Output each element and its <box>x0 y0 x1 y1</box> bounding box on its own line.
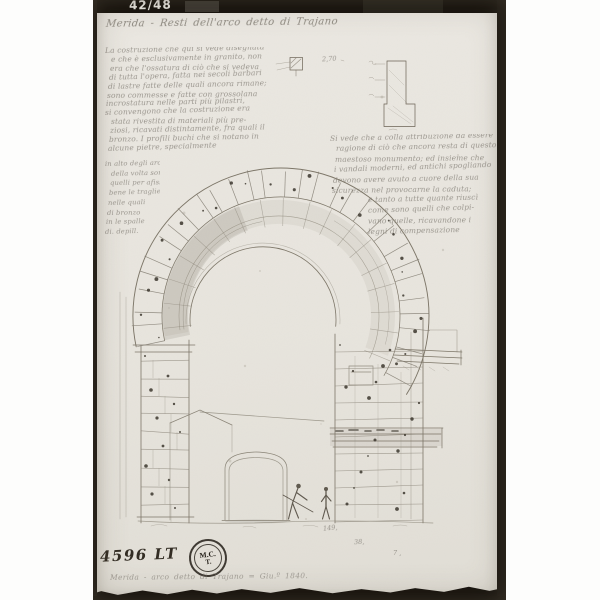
putlog-dot <box>149 388 153 392</box>
putlog-dot <box>180 221 184 225</box>
base-shade <box>330 429 442 446</box>
putlog-dot <box>413 329 417 333</box>
putlog-dot <box>395 362 398 365</box>
putlog-dot <box>367 396 371 400</box>
bottom-caption: Merida - arco detto di Trajano = Giu.º 1… <box>110 571 308 582</box>
putlog-dot <box>215 207 218 210</box>
putlog-dot <box>167 375 170 378</box>
putlog-dot <box>293 188 296 191</box>
stamp-text-bottom: T. <box>205 558 212 566</box>
paper-spot <box>259 270 261 272</box>
putlog-dot <box>410 417 413 420</box>
putlog-dot <box>388 220 390 222</box>
photo-edge-right <box>497 0 506 596</box>
putlog-dot <box>401 271 403 273</box>
arch-drawing-svg <box>93 0 506 600</box>
paper-spot <box>442 249 444 251</box>
putlog-dot <box>144 464 148 468</box>
putlog-dot <box>269 183 271 185</box>
photograph: Merida - Resti dell'arco detto di Trajan… <box>93 0 506 600</box>
putlog-dot <box>360 471 363 474</box>
putlog-dot <box>332 187 334 189</box>
catalog-number: 4596 LT <box>100 544 179 565</box>
putlog-dot <box>155 416 158 419</box>
photo-edge-left <box>93 0 97 596</box>
putlog-dot <box>375 381 378 384</box>
putlog-dot <box>374 439 377 442</box>
putlog-dot <box>395 507 399 511</box>
paper-spot <box>122 59 123 60</box>
plate-number: 42/48 <box>129 0 172 12</box>
paper-spot <box>396 481 398 483</box>
paper-spot <box>320 423 321 424</box>
stamp-inner-ring: M.C. T. <box>192 542 223 573</box>
putlog-dot <box>202 210 204 212</box>
putlog-dot <box>344 385 347 388</box>
putlog-dot <box>358 213 362 217</box>
putlog-dot <box>389 349 392 352</box>
paper-spot <box>244 365 246 367</box>
putlog-dot <box>173 403 175 405</box>
putlog-dot <box>346 503 349 506</box>
putlog-dot <box>400 257 403 260</box>
putlog-dot <box>308 174 312 178</box>
putlog-dot <box>154 277 158 281</box>
putlog-dot <box>144 355 146 357</box>
putlog-dot <box>162 445 165 448</box>
paper-spot <box>229 460 232 463</box>
top-edge-patch <box>363 0 443 13</box>
putlog-dot <box>341 197 344 200</box>
putlog-dot <box>230 181 233 184</box>
putlog-dot <box>404 353 406 355</box>
putlog-dot <box>140 314 142 316</box>
putlog-dot <box>161 239 164 242</box>
putlog-dot <box>353 487 355 489</box>
putlog-dot <box>392 233 395 236</box>
putlog-dot <box>179 431 181 433</box>
paper-spot <box>305 518 307 520</box>
putlog-dot <box>158 337 160 339</box>
putlog-dot <box>174 507 176 509</box>
putlog-dot <box>339 344 341 346</box>
figure-1-head <box>296 484 301 489</box>
putlog-dot <box>147 289 150 292</box>
putlog-dot <box>169 258 171 260</box>
putlog-dot <box>396 449 399 452</box>
putlog-dot <box>381 364 385 368</box>
album-edge-top: 42/48 <box>93 0 506 13</box>
putlog-dot <box>245 183 247 185</box>
putlog-dot <box>418 402 420 404</box>
putlog-dot <box>404 434 406 436</box>
putlog-dot <box>352 370 354 372</box>
putlog-dot <box>402 294 404 296</box>
putlog-dot <box>150 492 153 495</box>
paper-grain <box>93 0 506 600</box>
scan-page: Merida - Resti dell'arco detto di Trajan… <box>0 0 600 600</box>
putlog-dot <box>419 317 422 320</box>
putlog-dot <box>367 455 369 457</box>
top-edge-patch <box>185 1 219 12</box>
putlog-dot <box>403 492 406 495</box>
paper-spot <box>457 154 459 156</box>
